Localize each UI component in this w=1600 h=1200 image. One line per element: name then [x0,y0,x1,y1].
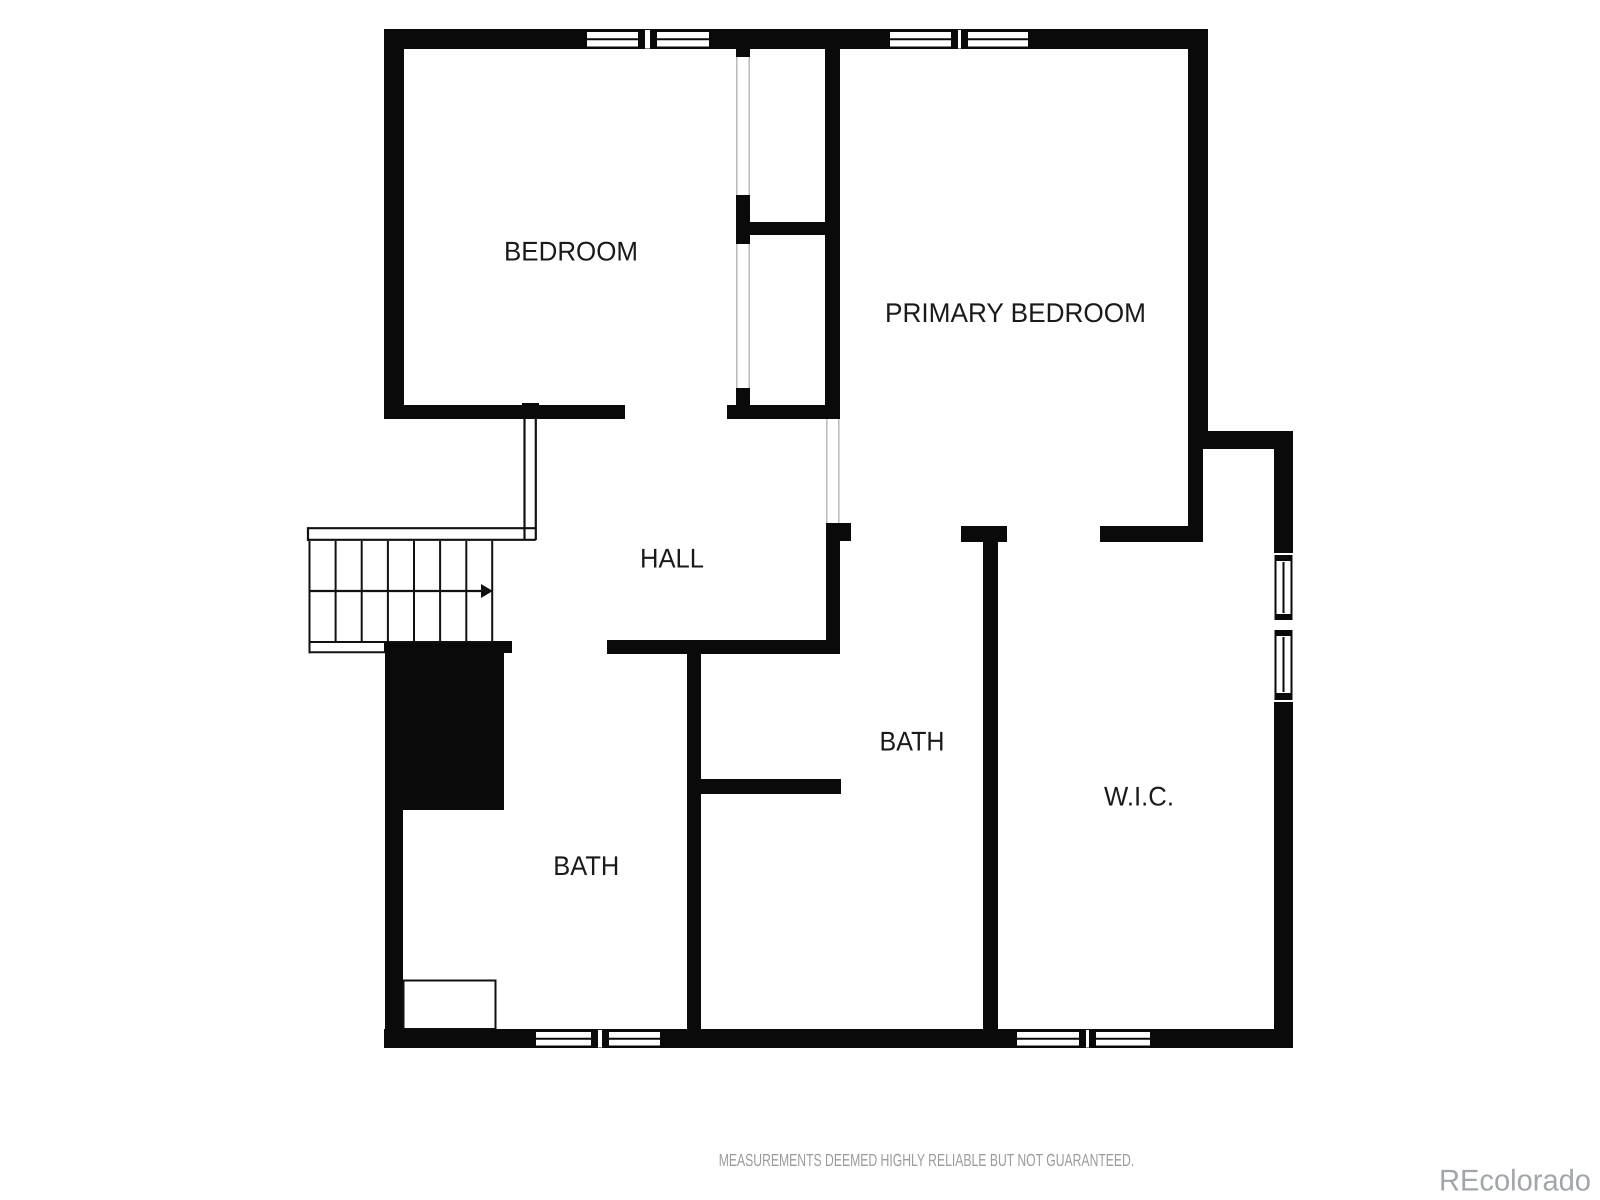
svg-text:BATH: BATH [553,851,619,881]
svg-text:BEDROOM: BEDROOM [504,237,638,267]
svg-text:HALL: HALL [640,544,704,574]
svg-text:PRIMARY BEDROOM: PRIMARY BEDROOM [885,298,1146,328]
svg-text:REcolorado: REcolorado [1439,1165,1591,1198]
svg-text:BATH: BATH [880,727,945,757]
svg-text:MEASUREMENTS DEEMED HIGHLY REL: MEASUREMENTS DEEMED HIGHLY RELIABLE BUT … [719,1150,1135,1170]
svg-text:W.I.C.: W.I.C. [1104,782,1174,812]
